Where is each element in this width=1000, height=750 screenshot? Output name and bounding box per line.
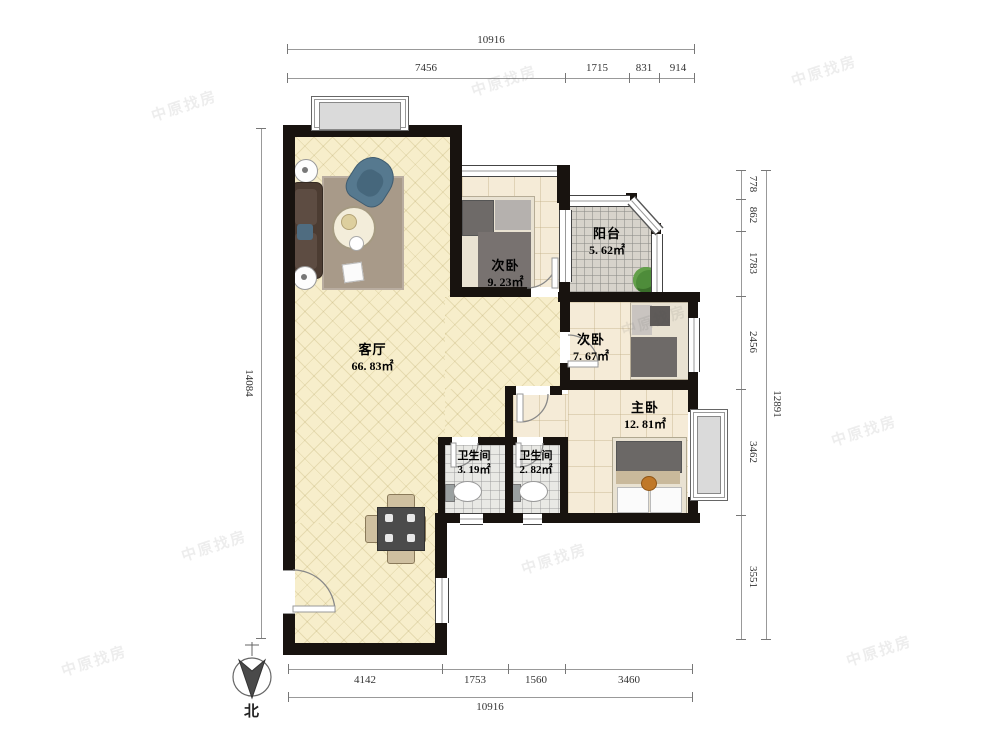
tick (736, 515, 746, 516)
bathroom2-area: 2. 82㎡ (510, 463, 562, 477)
dim-bottom-total: 10916 (476, 701, 504, 713)
tick (287, 73, 288, 83)
hallway-door (517, 394, 548, 422)
tick (694, 44, 695, 54)
tick (659, 73, 660, 83)
bedroom2a-name: 次卧 (458, 258, 553, 275)
dim-right-seg6: 3551 (747, 566, 759, 588)
tick (288, 692, 289, 702)
bathroom1-area: 3. 19㎡ (444, 463, 504, 477)
tick (736, 389, 746, 390)
dim-bottom-total-line (288, 697, 693, 698)
bedroom2b-name: 次卧 (550, 332, 632, 349)
label-balcony: 阳台 5. 62㎡ (567, 226, 647, 258)
label-bedroom2a: 次卧 9. 23㎡ (458, 258, 553, 290)
north-compass-label: 北 (244, 700, 259, 721)
entry-door (293, 570, 335, 612)
label-bathroom2: 卫生间 2. 82㎡ (510, 449, 562, 478)
tick (565, 73, 566, 83)
dim-top-total: 10916 (287, 34, 695, 46)
tick (288, 664, 289, 674)
tick (736, 639, 746, 640)
dim-bottom-seg2: 1753 (464, 674, 486, 686)
dim-right-seg3: 1783 (747, 252, 759, 274)
dim-bottom-seg3: 1560 (525, 674, 547, 686)
dim-top-seg1: 7456 (415, 62, 437, 74)
label-living-room: 客厅 66. 83㎡ (330, 342, 415, 374)
dim-right-seg5: 3462 (747, 441, 759, 463)
tick (256, 128, 266, 129)
bedroom2a-area: 9. 23㎡ (458, 275, 553, 291)
tick (736, 296, 746, 297)
floor-plan: 客厅 66. 83㎡ 次卧 9. 23㎡ 阳台 5. 62㎡ 次卧 7. 67㎡… (0, 0, 1000, 750)
dim-right-total-line (766, 170, 767, 639)
dim-right-seg1: 778 (747, 176, 759, 193)
tick (256, 638, 266, 639)
dim-bottom-seg-line (288, 669, 693, 670)
bathroom2-name: 卫生间 (510, 449, 562, 463)
tick (565, 664, 566, 674)
dim-right-seg-line (741, 170, 742, 639)
living-room-area: 66. 83㎡ (330, 359, 415, 375)
tick (694, 73, 695, 83)
tick (761, 170, 771, 171)
tick (442, 664, 443, 674)
dim-top-seg4: 914 (670, 62, 687, 74)
north-compass-icon (233, 642, 271, 698)
bathroom1-name: 卫生间 (444, 449, 504, 463)
dim-bottom-seg4: 3460 (618, 674, 640, 686)
tick (736, 231, 746, 232)
tick (692, 664, 693, 674)
tick (629, 73, 630, 83)
dim-right-seg4: 2456 (747, 331, 759, 353)
master-bedroom-area: 12. 81㎡ (600, 417, 690, 433)
label-bathroom1: 卫生间 3. 19㎡ (444, 449, 504, 478)
tick (508, 664, 509, 674)
bedroom2b-area: 7. 67㎡ (550, 349, 632, 365)
dim-top-seg2: 1715 (586, 62, 608, 74)
balcony-name: 阳台 (567, 226, 647, 243)
living-room-name: 客厅 (330, 342, 415, 359)
dim-left-line (261, 128, 262, 638)
tick (692, 692, 693, 702)
dim-right-total: 12891 (771, 390, 783, 418)
dim-left-total: 14084 (243, 369, 255, 397)
tick (736, 199, 746, 200)
tick (287, 44, 288, 54)
label-bedroom2b: 次卧 7. 67㎡ (550, 332, 632, 364)
tick (736, 170, 746, 171)
dim-bottom-seg1: 4142 (354, 674, 376, 686)
balcony-area: 5. 62㎡ (567, 243, 647, 259)
label-master-bedroom: 主卧 12. 81㎡ (600, 400, 690, 432)
dim-top-total-line (287, 49, 695, 50)
dim-right-seg2: 862 (747, 207, 759, 224)
master-bedroom-name: 主卧 (600, 400, 690, 417)
tick (761, 639, 771, 640)
dim-top-seg3: 831 (636, 62, 653, 74)
